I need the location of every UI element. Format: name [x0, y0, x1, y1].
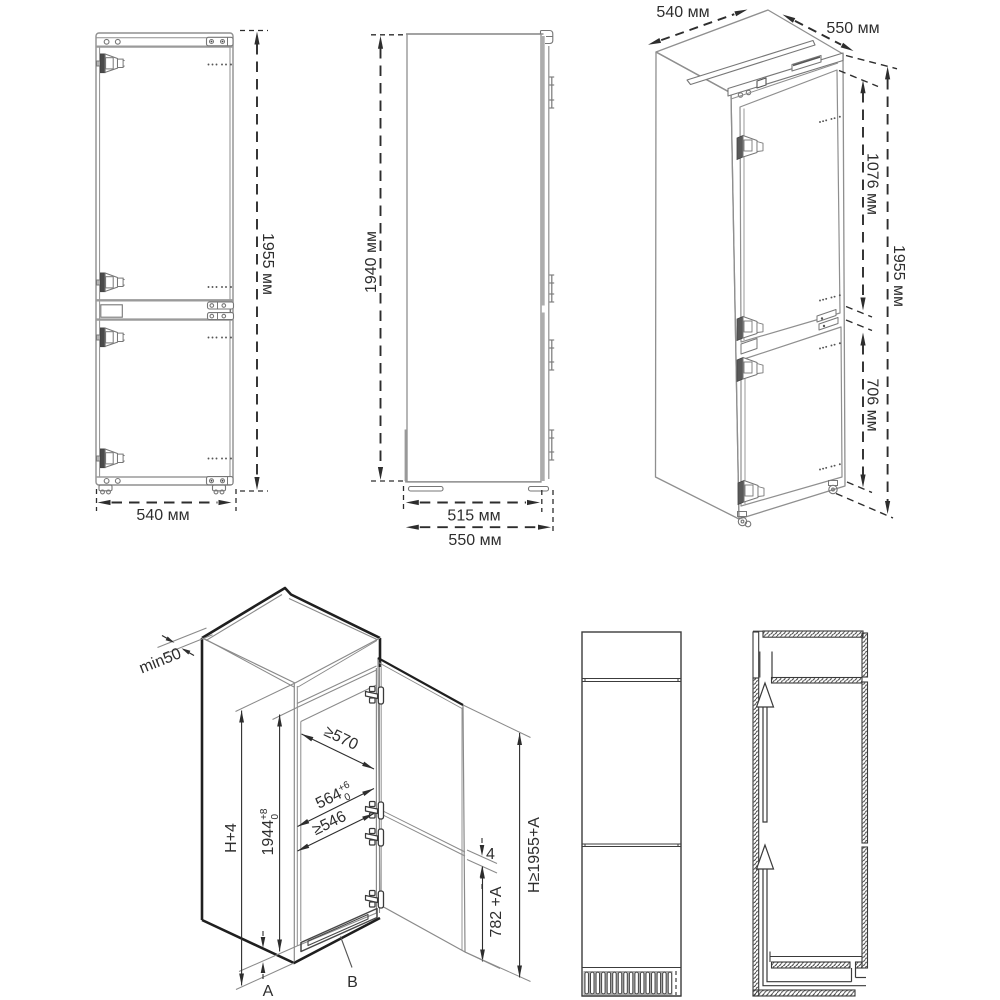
svg-text:1940 мм: 1940 мм	[363, 231, 380, 293]
svg-text:H+4: H+4	[223, 823, 240, 853]
svg-text:540 мм: 540 мм	[136, 507, 189, 524]
svg-text:1076 мм: 1076 мм	[864, 153, 881, 215]
svg-text:706 мм: 706 мм	[864, 378, 881, 431]
svg-text:A: A	[263, 983, 274, 1000]
svg-text:550 мм: 550 мм	[826, 20, 879, 37]
svg-text:H≥1955+A: H≥1955+A	[526, 817, 543, 893]
svg-text:540 мм: 540 мм	[656, 4, 709, 21]
svg-text:782 +A: 782 +A	[488, 886, 505, 937]
svg-text:1955 мм: 1955 мм	[890, 245, 907, 307]
svg-text:4: 4	[486, 846, 495, 863]
svg-text:B: B	[347, 974, 358, 991]
svg-text:1955 мм: 1955 мм	[259, 233, 276, 295]
svg-text:515 мм: 515 мм	[447, 508, 500, 525]
svg-text:550 мм: 550 мм	[448, 532, 501, 549]
